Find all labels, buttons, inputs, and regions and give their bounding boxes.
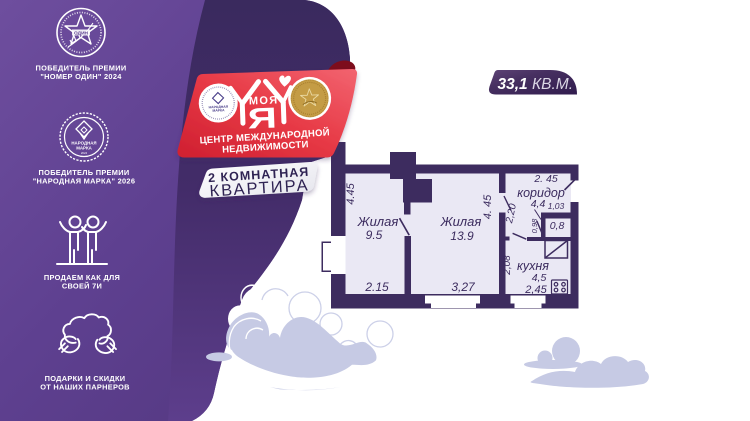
svg-text:0,8: 0,8 bbox=[550, 220, 565, 232]
svg-text:МАРКА: МАРКА bbox=[76, 146, 92, 151]
svg-text:ОТ НАШИХ ПАРНЕРОВ: ОТ НАШИХ ПАРНЕРОВ bbox=[40, 383, 130, 392]
svg-text:2. 45: 2. 45 bbox=[533, 173, 558, 185]
svg-text:3,27: 3,27 bbox=[451, 280, 476, 294]
svg-text:4,4: 4,4 bbox=[531, 198, 546, 210]
svg-text:4,5: 4,5 bbox=[532, 272, 547, 284]
svg-text:КВ.М.: КВ.М. bbox=[532, 76, 573, 93]
svg-text:МАРКА: МАРКА bbox=[212, 108, 225, 112]
svg-text:0,98: 0,98 bbox=[530, 218, 539, 233]
svg-text:ОДИН: ОДИН bbox=[74, 31, 89, 37]
svg-text:Жилая: Жилая bbox=[440, 214, 482, 229]
svg-text:2024: 2024 bbox=[81, 151, 88, 155]
svg-text:кухня: кухня bbox=[517, 259, 549, 273]
svg-text:"НОМЕР ОДИН" 2024: "НОМЕР ОДИН" 2024 bbox=[40, 72, 122, 81]
svg-text:2,45: 2,45 bbox=[524, 284, 547, 296]
svg-text:4. 45: 4. 45 bbox=[482, 194, 494, 219]
svg-text:13.9: 13.9 bbox=[450, 229, 474, 243]
svg-text:СВОЕЙ 7И: СВОЕЙ 7И bbox=[62, 282, 102, 291]
svg-text:2.15: 2.15 bbox=[364, 280, 389, 294]
svg-text:Жилая: Жилая bbox=[357, 214, 399, 229]
svg-text:9.5: 9.5 bbox=[366, 228, 383, 242]
svg-text:4.45: 4.45 bbox=[345, 182, 357, 204]
svg-text:2,08: 2,08 bbox=[502, 255, 513, 276]
svg-text:"НАРОДНАЯ МАРКА" 2026: "НАРОДНАЯ МАРКА" 2026 bbox=[33, 177, 136, 186]
svg-text:33,1: 33,1 bbox=[498, 76, 528, 93]
svg-text:1,03: 1,03 bbox=[548, 201, 565, 211]
